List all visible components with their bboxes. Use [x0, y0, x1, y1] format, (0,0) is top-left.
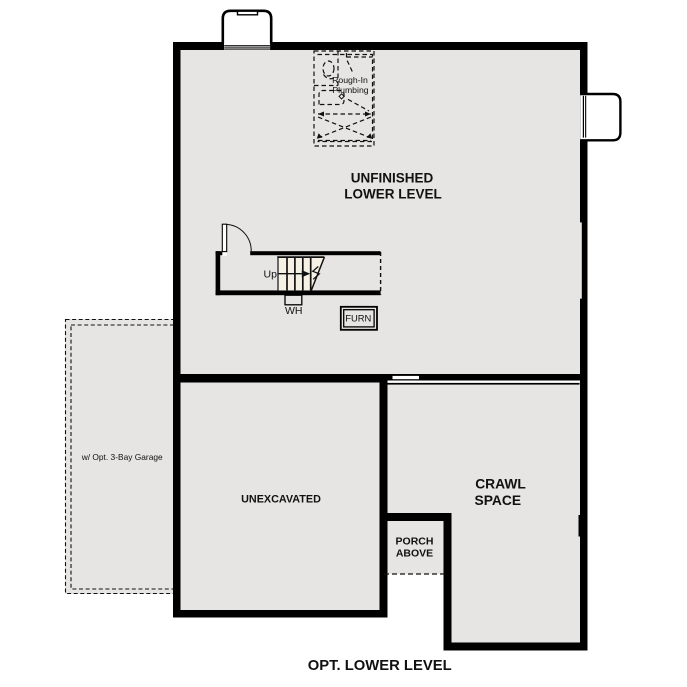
svg-text:Up: Up: [264, 269, 278, 281]
svg-text:Rough-In: Rough-In: [332, 75, 368, 85]
svg-text:FURN: FURN: [345, 312, 371, 323]
svg-text:PORCH: PORCH: [396, 536, 434, 548]
svg-text:WH: WH: [285, 305, 303, 317]
svg-text:CRAWL: CRAWL: [475, 477, 526, 492]
svg-text:Plumbing: Plumbing: [332, 85, 368, 95]
svg-text:UNFINISHED: UNFINISHED: [351, 171, 434, 186]
svg-text:SPACE: SPACE: [475, 493, 522, 508]
svg-text:UNEXCAVATED: UNEXCAVATED: [241, 494, 321, 506]
svg-text:OPT. LOWER LEVEL: OPT. LOWER LEVEL: [308, 658, 452, 674]
svg-text:ABOVE: ABOVE: [396, 548, 433, 560]
svg-text:w/ Opt. 3-Bay Garage: w/ Opt. 3-Bay Garage: [81, 452, 163, 462]
svg-text:LOWER LEVEL: LOWER LEVEL: [344, 187, 442, 202]
